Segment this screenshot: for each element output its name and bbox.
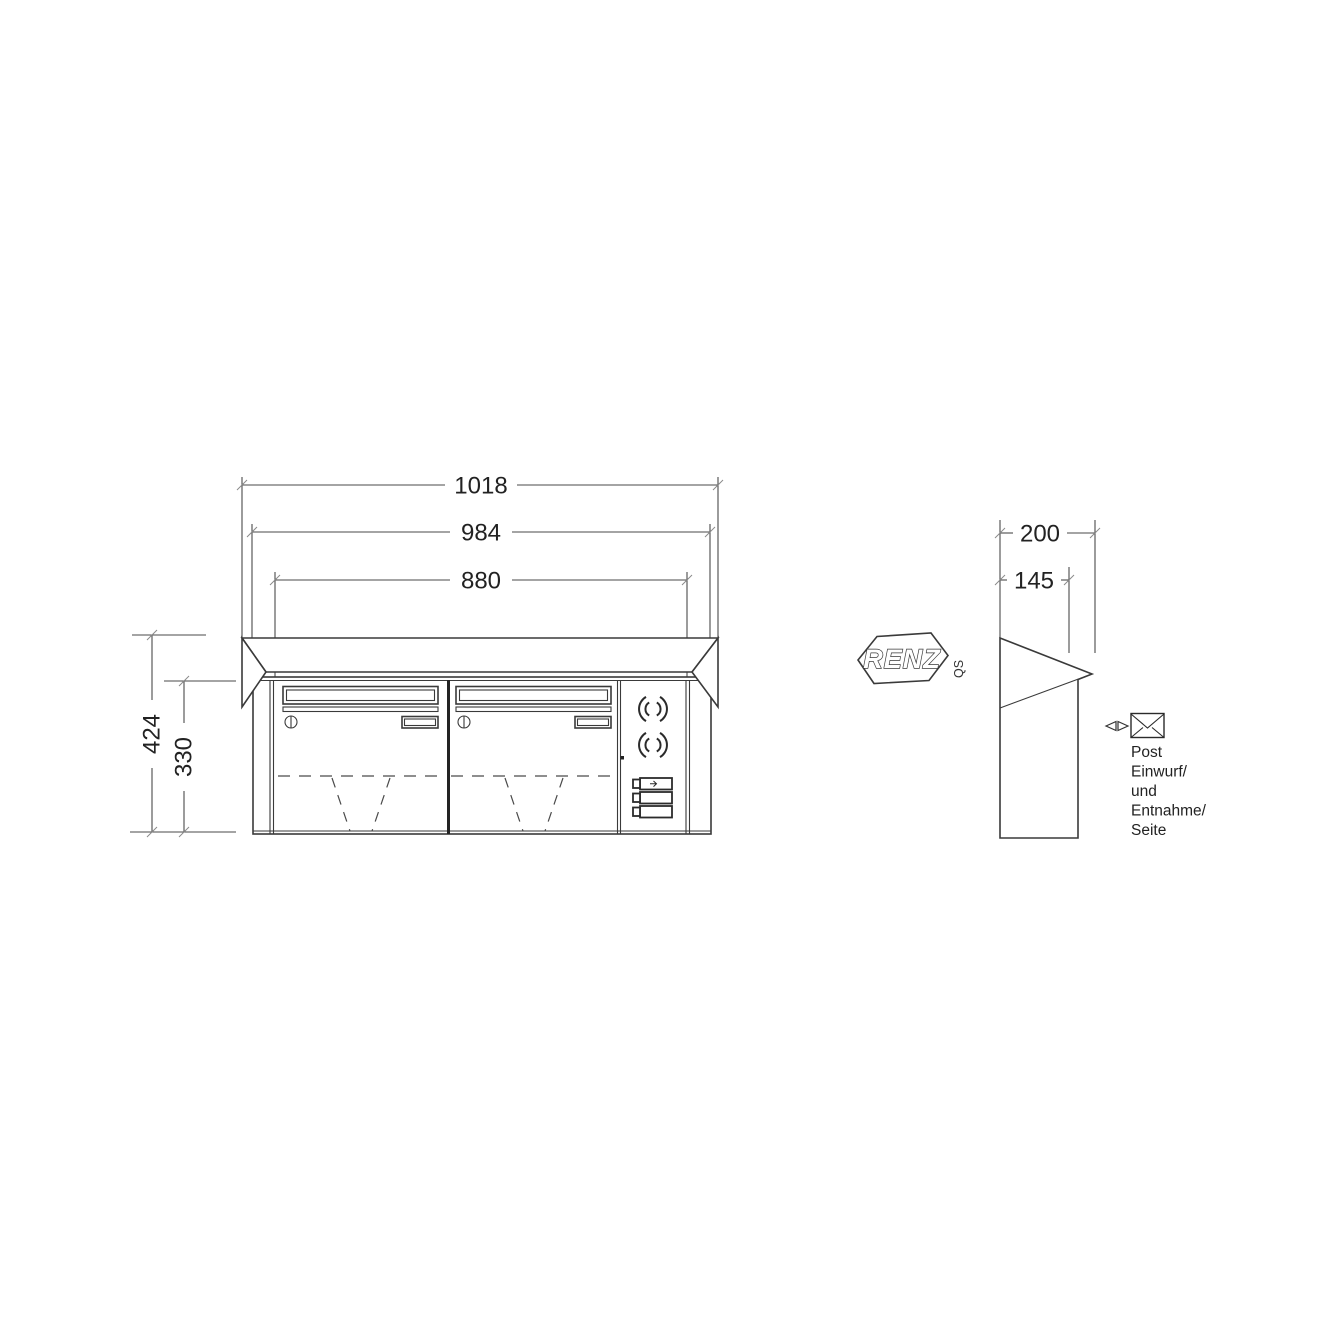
side-view: [1000, 638, 1092, 838]
technical-drawing: 1018 984 880 424 330: [0, 0, 1320, 1320]
note-line: Entnahme/: [1131, 803, 1207, 820]
hinge-dot: [621, 756, 625, 760]
bell-button-3: [633, 806, 672, 818]
dimension-total-height: 424: [130, 630, 236, 837]
dimension-body-height: 330: [164, 676, 236, 837]
note-line: und: [1131, 783, 1157, 800]
post-note: Post Einwurf/ und Entnahme/ Seite: [1106, 714, 1207, 840]
bell-button-2: [633, 792, 672, 804]
left-right-arrows-icon: [1106, 722, 1128, 731]
envelope-icon: [1131, 714, 1164, 738]
front-view: [242, 638, 718, 834]
note-line: Einwurf/: [1131, 764, 1188, 781]
name-plate-2: [575, 717, 611, 729]
name-plate-1: [402, 717, 438, 729]
dim-label-145: 145: [1014, 568, 1054, 595]
brand-logo: RENZ QS: [858, 633, 966, 684]
letter-slot-1: [283, 687, 438, 705]
dim-label-1018: 1018: [454, 473, 507, 500]
letter-slot-2: [456, 687, 611, 705]
dim-label-330: 330: [171, 737, 198, 777]
qs-label: QS: [952, 660, 966, 678]
dimension-hood-width: 1018: [237, 473, 723, 639]
dim-label-200: 200: [1020, 521, 1060, 548]
note-line: Seite: [1131, 822, 1166, 839]
dim-label-424: 424: [139, 714, 166, 754]
dim-label-880: 880: [461, 568, 501, 595]
bell-button-1: [633, 778, 672, 790]
note-line: Post: [1131, 744, 1163, 761]
dim-label-984: 984: [461, 520, 501, 547]
logo-text: RENZ: [863, 644, 941, 674]
